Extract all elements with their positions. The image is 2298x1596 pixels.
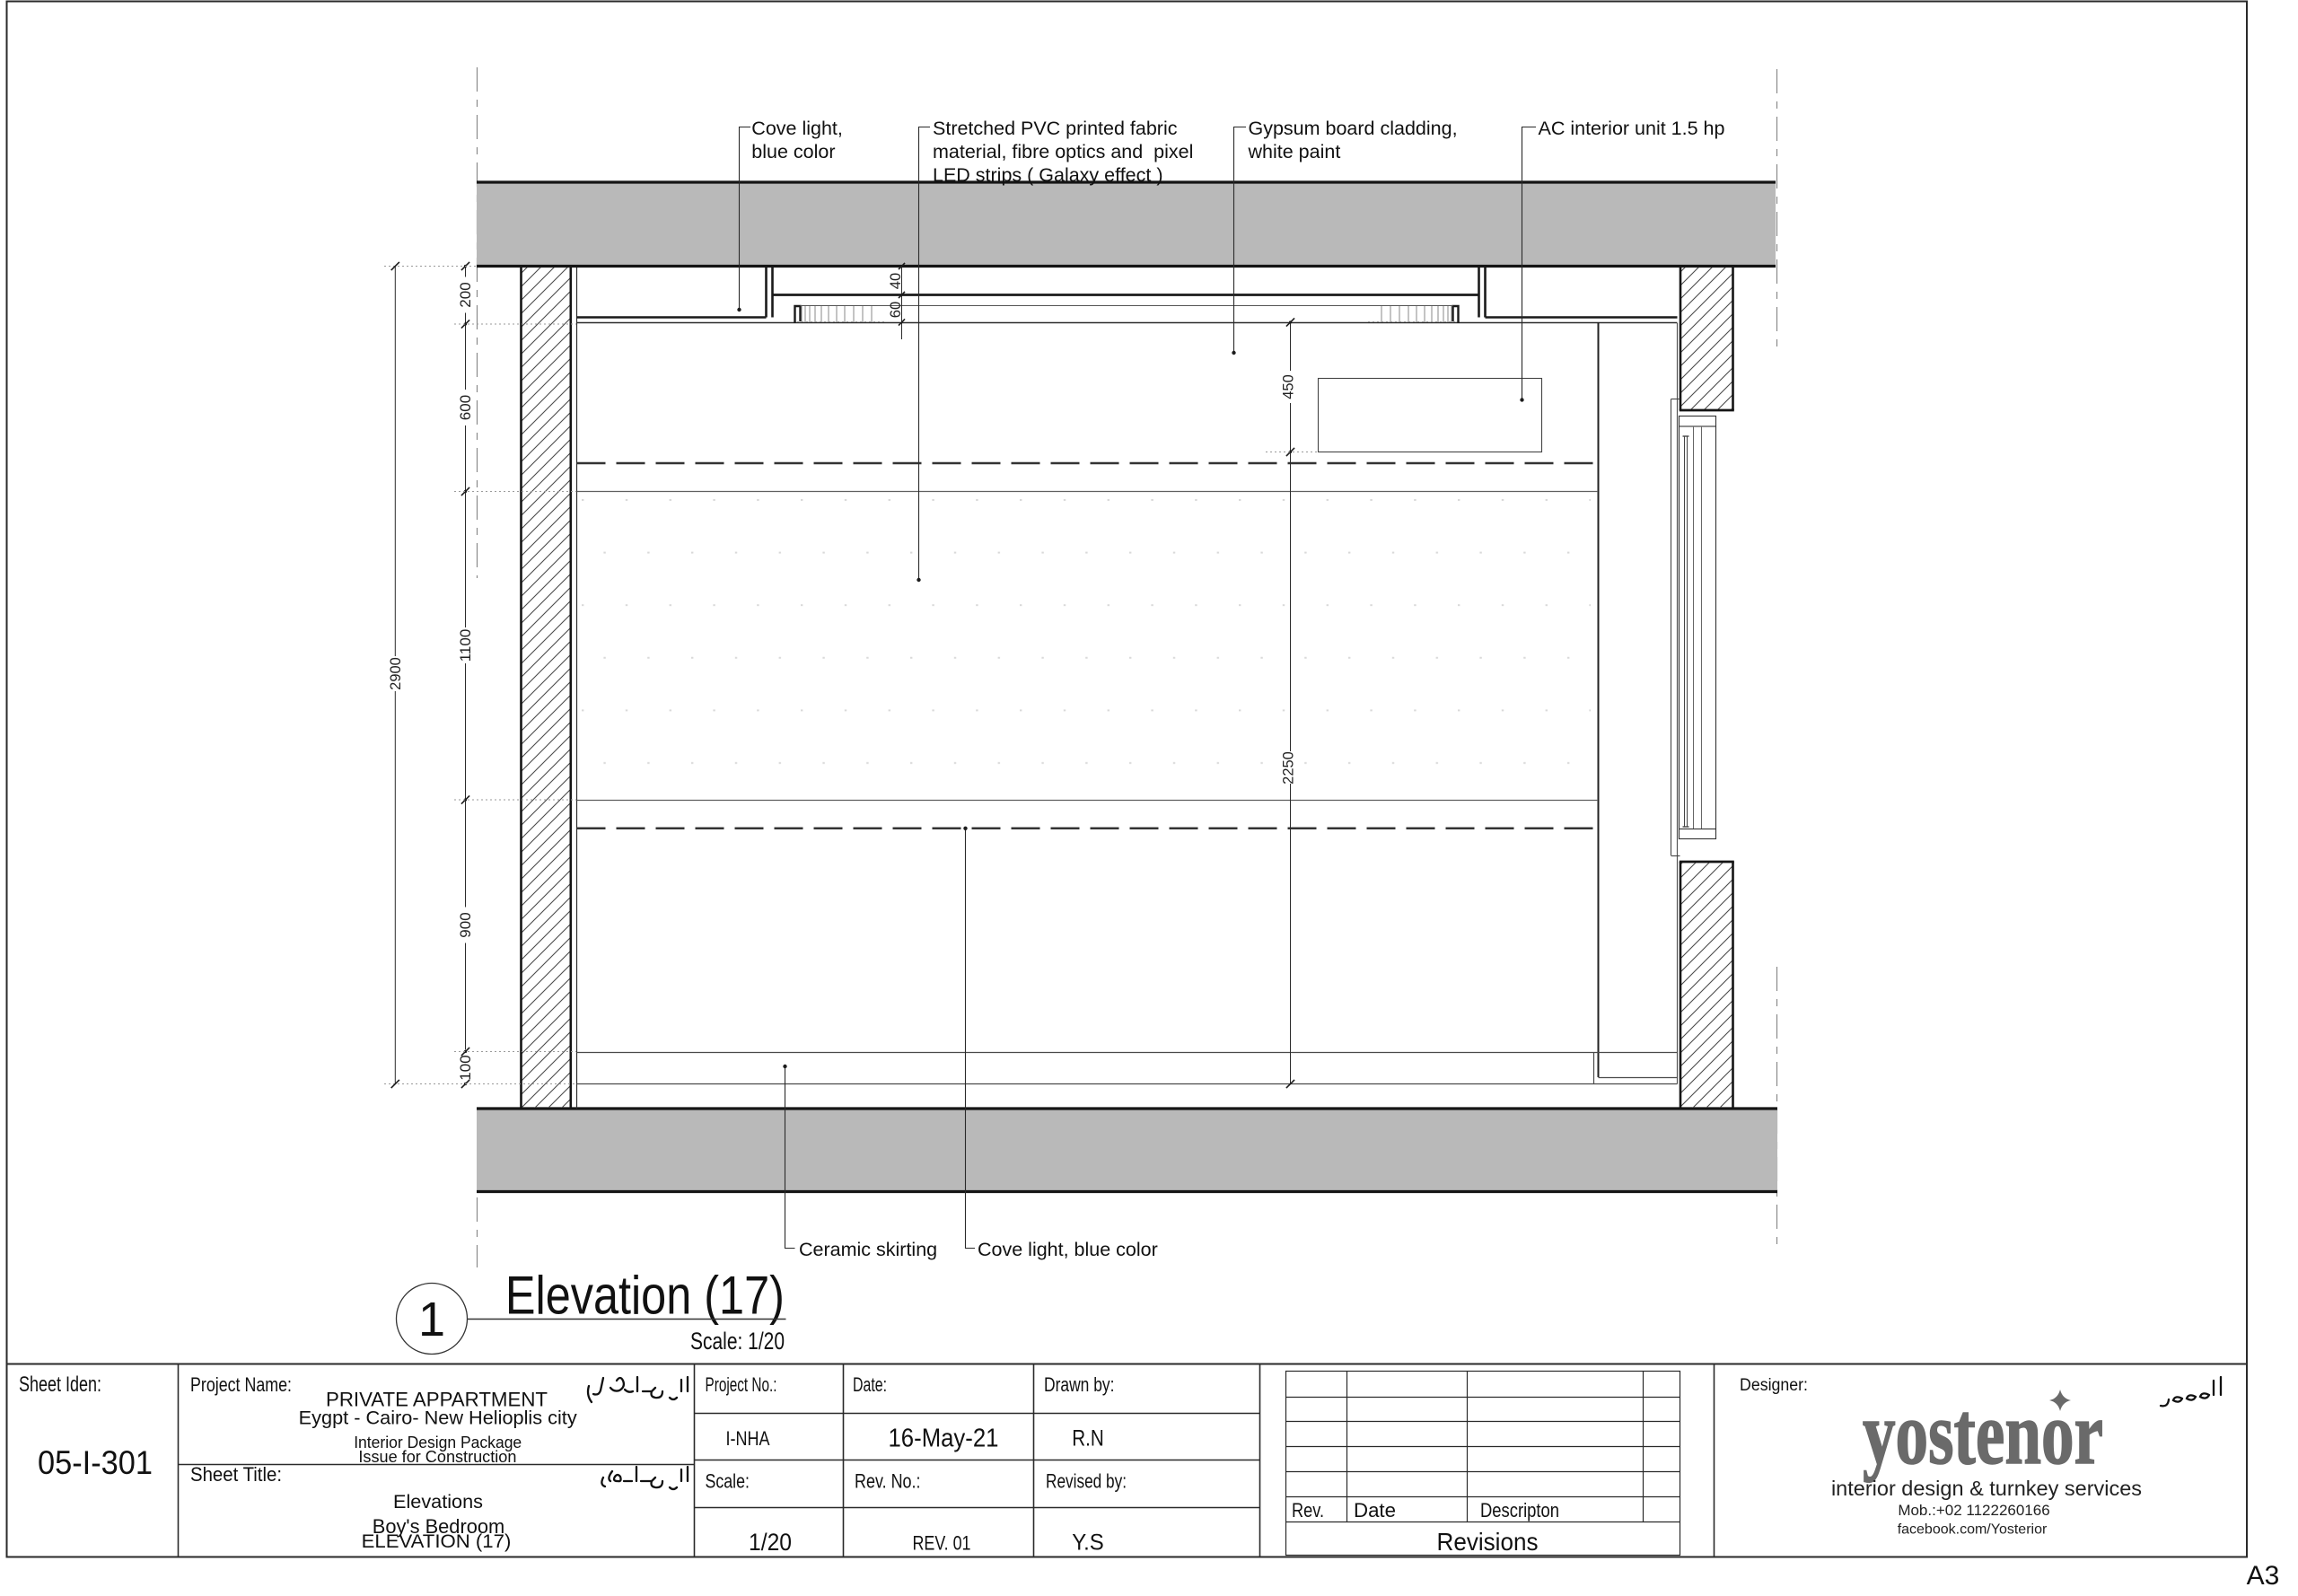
svg-text:900: 900 <box>457 912 474 937</box>
svg-text:AC interior unit 1.5 hp: AC interior unit 1.5 hp <box>1539 118 1725 139</box>
svg-text:interior design & turnkey serv: interior design & turnkey services <box>1831 1477 2142 1500</box>
svg-text:40: 40 <box>888 273 904 289</box>
svg-text:Designer:: Designer: <box>1740 1376 1808 1395</box>
svg-text:REV. 01: REV. 01 <box>913 1532 971 1555</box>
svg-text:Sheet Iden:: Sheet Iden: <box>19 1372 101 1397</box>
svg-text:blue color: blue color <box>751 141 835 162</box>
svg-text:yostenor: yostenor <box>1863 1383 2103 1483</box>
svg-text:Elevations: Elevations <box>393 1490 483 1513</box>
svg-text:facebook.com/Yosterior: facebook.com/Yosterior <box>1898 1522 2048 1538</box>
svg-text:Descripton: Descripton <box>1480 1499 1559 1521</box>
svg-text:16-May-21: 16-May-21 <box>889 1425 999 1453</box>
svg-text:Date: Date <box>1354 1499 1396 1521</box>
svg-text:Gypsum board cladding,: Gypsum board cladding, <box>1249 118 1458 139</box>
svg-text:A3: A3 <box>2247 1561 2280 1591</box>
svg-text:Scale: 1/20: Scale: 1/20 <box>690 1328 785 1355</box>
svg-text:Stretched PVC printed fabric: Stretched PVC printed fabric <box>933 118 1178 139</box>
svg-text:05-I-301: 05-I-301 <box>38 1444 153 1481</box>
svg-text:Rev.: Rev. <box>1292 1499 1324 1521</box>
svg-text:Ceramic skirting: Ceramic skirting <box>799 1239 937 1260</box>
svg-text:60: 60 <box>888 302 904 318</box>
svg-text:ELEVATION (17): ELEVATION (17) <box>362 1530 512 1552</box>
svg-text:Project Name:: Project Name: <box>190 1373 292 1396</box>
svg-text:Y.S: Y.S <box>1072 1530 1104 1556</box>
svg-text:Mob.:+02 1122260166: Mob.:+02 1122260166 <box>1898 1502 2049 1519</box>
svg-text:1: 1 <box>418 1293 445 1346</box>
svg-text:Date:: Date: <box>853 1373 887 1396</box>
svg-text:Revised by:: Revised by: <box>1046 1470 1127 1493</box>
svg-text:600: 600 <box>457 395 474 420</box>
svg-text:Cove light, blue color: Cove light, blue color <box>978 1239 1158 1260</box>
svg-text:Drawn by:: Drawn by: <box>1044 1373 1115 1396</box>
svg-text:Revisions: Revisions <box>1437 1528 1539 1556</box>
svg-text:Rev. No.:: Rev. No.: <box>855 1470 921 1493</box>
svg-text:100: 100 <box>457 1055 474 1080</box>
svg-text:2900: 2900 <box>388 657 404 690</box>
svg-text:Issue for Construction: Issue for Construction <box>358 1448 516 1466</box>
svg-text:Elevation (17): Elevation (17) <box>505 1266 785 1326</box>
svg-text:Sheet Title:: Sheet Title: <box>190 1463 282 1486</box>
svg-text:1100: 1100 <box>457 629 474 662</box>
svg-text:200: 200 <box>457 282 474 307</box>
svg-text:white paint: white paint <box>1248 141 1341 162</box>
svg-text:material, fibre optics and pi: material, fibre optics and pixel <box>933 141 1193 162</box>
svg-text:Scale:: Scale: <box>706 1470 750 1493</box>
svg-text:I-NHA: I-NHA <box>726 1427 770 1450</box>
svg-text:Eygpt - Cairo- New Helioplis c: Eygpt - Cairo- New Helioplis city <box>299 1407 577 1429</box>
svg-text:LED strips ( Galaxy effect ): LED strips ( Galaxy effect ) <box>933 164 1163 186</box>
svg-text:2250: 2250 <box>1281 751 1297 785</box>
svg-text:450: 450 <box>1281 374 1297 399</box>
svg-text:Project No.:: Project No.: <box>706 1373 777 1396</box>
svg-text:R.N: R.N <box>1072 1426 1104 1451</box>
svg-text:Cove light,: Cove light, <box>751 118 843 139</box>
svg-text:1/20: 1/20 <box>749 1529 792 1556</box>
